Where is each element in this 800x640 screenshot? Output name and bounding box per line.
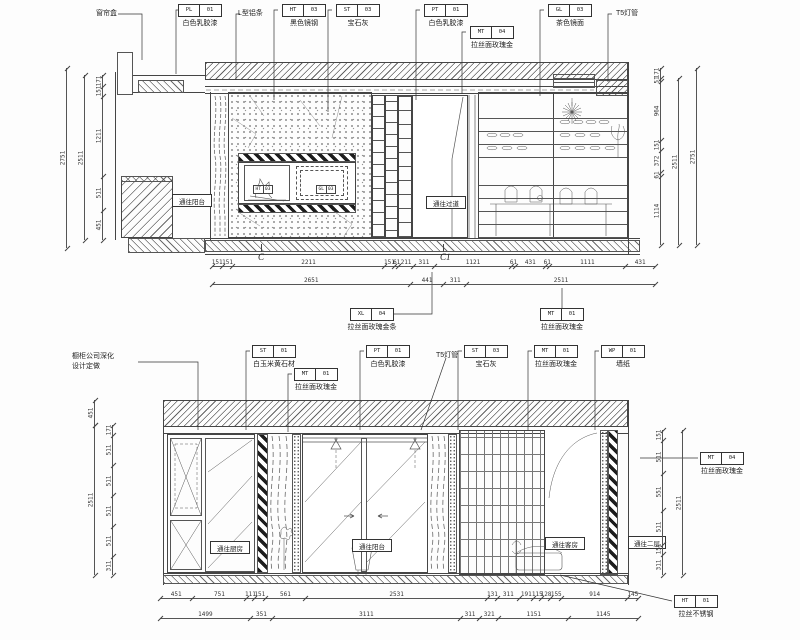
room-label: 通往厨房 [210,541,250,554]
material-num: 03 [358,5,378,16]
dim-chain: 2511 [678,78,679,245]
dim-tick [110,523,116,529]
dim-chain: 2511 [94,425,95,575]
material-label: 拉丝面玫瑰金条 [331,322,413,332]
dim-value: 3111 [359,611,373,618]
material-code: MT [541,309,562,320]
e2-stone-strip-b [448,434,457,573]
material-num: 03 [486,346,506,357]
dim-value: 2511 [78,150,85,164]
material-code: MT [471,27,492,38]
mini-code: HT [254,186,264,193]
dim-value: 441 [422,277,433,284]
dim-value: 191 [521,591,532,598]
dim-tick [209,282,215,288]
dim-chain: 2511 [682,430,683,575]
e1-wall-left-inner [210,92,211,240]
e1-curtain-lines [214,96,226,236]
dim-tick [635,616,641,622]
section-marker: C1 [440,252,451,262]
material-tag: MT01拉丝面玫瑰金 [540,308,584,321]
dim-value: 1499 [198,611,212,618]
material-tag: PT01白色乳胶漆 [366,345,410,358]
dim-value: 1121 [466,259,480,266]
dim-tick [680,427,686,433]
dim-tick [100,207,106,213]
section-marker-line [261,244,262,252]
dim-tick [100,237,106,243]
e1-ceiling-line-a [133,75,205,76]
dim-tick [432,264,438,270]
e1-window [121,176,173,238]
e1-shelves-top [479,108,627,158]
dim-value: 321 [484,611,495,618]
material-tag: PL01白色乳胶漆 [178,4,222,17]
dim-value: 311 [656,559,663,570]
material-label: 白色乳胶漆 [159,18,241,28]
dim-chain: 151511551511151311 [662,430,663,575]
dim-value: 2511 [88,493,95,507]
dim-value: 311 [450,277,461,284]
material-code: WP [602,346,623,357]
material-label: 墙纸 [582,359,664,369]
material-code: ST [253,346,274,357]
dim-value: 145 [627,591,638,598]
dim-value: 211 [401,259,412,266]
e1-ceiling-light-grille [553,74,595,88]
e1-right-wall [628,62,629,254]
material-label: 宝石灰 [317,18,399,28]
dim-value: 1145 [596,611,610,618]
dim-chain: 171511511511511311 [112,425,113,575]
e2-stone-strip-c [600,430,608,575]
dim-value: 2651 [304,277,318,284]
room-label: 通往阳台 [352,539,392,552]
e2-black-strip-left [257,434,268,573]
e2-left-wall [163,400,164,585]
dim-tick [623,264,629,270]
mini-num: 03 [264,186,273,193]
dim-value: 61 [544,259,551,266]
dim-tick [676,242,682,248]
material-num: 01 [274,346,294,357]
material-tag: GL03茶色镜面 [548,4,592,17]
material-tag: HT03黑色镜钢 [282,4,326,17]
dim-tick [652,264,658,270]
material-label: 拉丝面玫瑰金 [681,466,763,476]
dim-chain: 2511 [84,75,85,240]
dim-tick [566,616,572,622]
dim-tick [82,72,88,78]
dim-value: 151 [656,544,663,555]
dim-value: 2211 [301,259,315,266]
dim-value: 451 [171,591,182,598]
dim-tick [100,174,106,180]
dim-chain: 2751 [696,68,697,245]
dim-tick [110,463,116,469]
dim-value: 151 [222,259,233,266]
dim-tick [92,572,98,578]
material-num: 04 [372,309,392,320]
dim-value: 511 [106,536,113,547]
dim-chain: 451 [94,400,95,425]
dim-value: 61 [654,171,661,178]
dim-value: 511 [656,452,663,463]
dim-value: 2751 [60,151,67,165]
annotation-text: L型铝条 [238,8,263,18]
material-code: HT [675,596,696,607]
material-code: MT [535,346,556,357]
material-tag: MT04拉丝面玫瑰金 [470,26,514,39]
e1-soffit-hatch [138,80,184,93]
e1-floor-hatch [205,240,640,252]
dim-tick [458,616,464,622]
annotation-text: 窗帘盒 [96,8,117,18]
room-label: 通往阳台 [172,194,212,207]
material-tag: ST03宝石灰 [464,345,508,358]
e2-blank-panel [545,430,600,575]
e2-stone-strip-a [292,434,301,573]
dim-value: 511 [656,522,663,533]
dim-value: 1114 [654,204,661,218]
material-label: 拉丝不锈钢 [655,609,737,619]
e1-window-sill [121,176,173,182]
material-code: XL [351,309,372,320]
dim-value: 511 [106,475,113,486]
dim-value: 151 [96,86,103,97]
material-tag: ST01白玉米黄石材 [252,345,296,358]
material-tag: HT01拉丝不锈钢 [674,595,718,608]
dim-value: 151 [212,259,223,266]
material-tag: WP01墙纸 [601,345,645,358]
dim-value: 2511 [676,495,683,509]
mini-code: GL [317,186,327,193]
dim-tick [82,237,88,243]
dim-tick [190,596,196,602]
material-num: 04 [492,27,512,38]
e2-sidelight-top [170,438,202,516]
material-label: 拉丝面玫瑰金 [451,40,533,50]
dim-value: 131 [487,591,498,598]
dim-tick [303,596,309,602]
material-code: PT [367,346,388,357]
dim-tick [408,282,414,288]
e1-floor-line-b [205,254,640,255]
dim-value: 351 [256,611,267,618]
e1-frame-strip [469,95,475,238]
dim-tick [658,242,664,248]
dim-value: 2531 [389,591,403,598]
dim-value: 431 [635,259,646,266]
dim-chain: 4517511111515612531131311191115128155914… [160,598,638,599]
material-num: 03 [304,5,324,16]
e1-floor-hatch-left [128,238,205,253]
e2-ceiling-hatch [163,400,628,427]
dim-tick [64,65,70,71]
dim-chain: 1499351311131132111511145 [160,618,638,619]
dim-value: 61 [393,259,400,266]
e1-niche-bottom-band [238,204,356,213]
e1-shelves-bottom [479,182,627,238]
dim-value: 311 [465,611,476,618]
material-label: 拉丝面玫瑰金 [521,322,603,332]
material-tag: MT01拉丝面玫瑰金 [534,345,578,358]
dim-value: 451 [88,407,95,418]
e1-wall-left-outer [115,72,116,240]
dim-tick [269,616,275,622]
dim-value: 61 [510,259,517,266]
dim-value: 51 [654,76,661,83]
dim-tick [676,75,682,81]
dim-tick [157,616,163,622]
dim-value: 372 [654,156,661,167]
material-code: PL [179,5,200,16]
material-num: 04 [722,453,742,464]
material-tag: MT01拉丝面玫瑰金 [294,368,338,381]
material-code: ST [337,5,358,16]
dim-value: 311 [106,560,113,571]
e2-sidelight-bottom [170,520,202,570]
room-label: 通往客房 [545,537,585,550]
dim-tick [64,245,70,251]
dim-tick [92,397,98,403]
dim-chain: 1711511211511451 [102,75,103,240]
dim-value: 431 [525,259,536,266]
cad-drawing-canvas: 窗帘盒PL01白色乳胶漆L型铝条HT03黑色镜钢ST03宝石灰PT01白色乳胶漆… [0,0,800,640]
material-code: ST [465,346,486,357]
dim-chain: 17151964151372611114 [660,68,661,245]
dim-tick [464,282,470,288]
e1-blank-panel [412,95,468,238]
dim-value: 1111 [580,259,594,266]
room-label: 通往过道 [426,196,466,209]
section-marker-line [443,244,444,252]
dim-value: 964 [654,106,661,117]
dim-value: 311 [418,259,429,266]
dim-value: 2511 [554,277,568,284]
material-tag: MT04拉丝面玫瑰金 [700,452,744,465]
dim-value: 511 [106,506,113,517]
dim-tick [694,242,700,248]
dim-value: 511 [106,445,113,456]
dim-tick [680,572,686,578]
dim-tick [110,572,116,578]
section-marker: C [258,252,264,262]
dim-value: 1211 [96,129,103,143]
dim-value: 751 [214,591,225,598]
material-code: MT [295,369,316,380]
dim-value: 311 [503,591,514,598]
dim-value: 561 [280,591,291,598]
material-num: 01 [316,369,336,380]
dim-value: 151 [254,591,265,598]
dim-value: 151 [656,430,663,441]
dim-value: 171 [106,425,113,436]
dim-value: 155 [551,591,562,598]
dim-tick [477,616,483,622]
material-num: 01 [556,346,576,357]
dim-value: 511 [96,188,103,199]
material-tag: ST03宝石灰 [336,4,380,17]
dim-value: 451 [96,220,103,231]
e2-slat-screen [459,430,545,575]
dim-tick [157,596,163,602]
dim-value: 151 [654,140,661,151]
material-num: 01 [623,346,643,357]
material-num: 01 [562,309,582,320]
dim-value: 171 [96,75,103,86]
material-code: PT [425,5,446,16]
material-code: GL [549,5,570,16]
material-tag: PT01白色乳胶漆 [424,4,468,17]
dim-chain: 26514413112511 [212,284,655,285]
dim-value: 2511 [672,154,679,168]
dim-chain: 2751 [66,68,67,248]
dim-tick [248,616,254,622]
material-num: 01 [696,596,716,607]
e1-curtainbox-profile [117,52,133,95]
mini-material-tag: GL03 [316,185,336,194]
dim-value: 551 [656,487,663,498]
dim-tick [441,282,447,288]
mini-num: 03 [327,186,336,193]
note-text: 橱柜公司深化设计定做 [72,352,114,372]
dim-tick [694,65,700,71]
e1-slat-strip [398,95,412,238]
dim-value: 2751 [690,149,697,163]
dim-tick [660,508,666,514]
e2-black-strip-right [608,430,618,575]
e1-niche-top-band [238,153,356,162]
e1-fireplace-opening [244,165,290,201]
mini-material-tag: HT03 [253,185,273,194]
dim-tick [660,572,666,578]
material-tag: XL04拉丝面玫瑰金条 [350,308,394,321]
material-num: 01 [388,346,408,357]
material-label: 茶色镜面 [529,18,611,28]
e2-right-wall [628,400,629,585]
dim-chain: 151151221115161211311112161431611111431 [212,266,655,267]
material-code: MT [701,453,722,464]
material-num: 01 [446,5,466,16]
annotation-text: T5灯管 [616,8,638,18]
e2-floor-hatch [163,575,628,584]
e2-curtain-b [431,436,445,570]
dim-value: 1151 [527,611,541,618]
dim-tick [496,616,502,622]
dim-tick [660,471,666,477]
dim-tick [110,493,116,499]
material-label: 白色乳胶漆 [347,359,429,369]
dim-tick [110,554,116,560]
e2-curtain-a [271,436,287,570]
e1-ladder-col-a [372,95,385,238]
material-num: 01 [200,5,220,16]
e1-ladder-col-b [385,95,398,238]
material-label: 拉丝面玫瑰金 [275,382,357,392]
material-num: 03 [570,5,590,16]
material-code: HT [283,5,304,16]
dim-tick [652,282,658,288]
dim-value: 914 [589,591,600,598]
